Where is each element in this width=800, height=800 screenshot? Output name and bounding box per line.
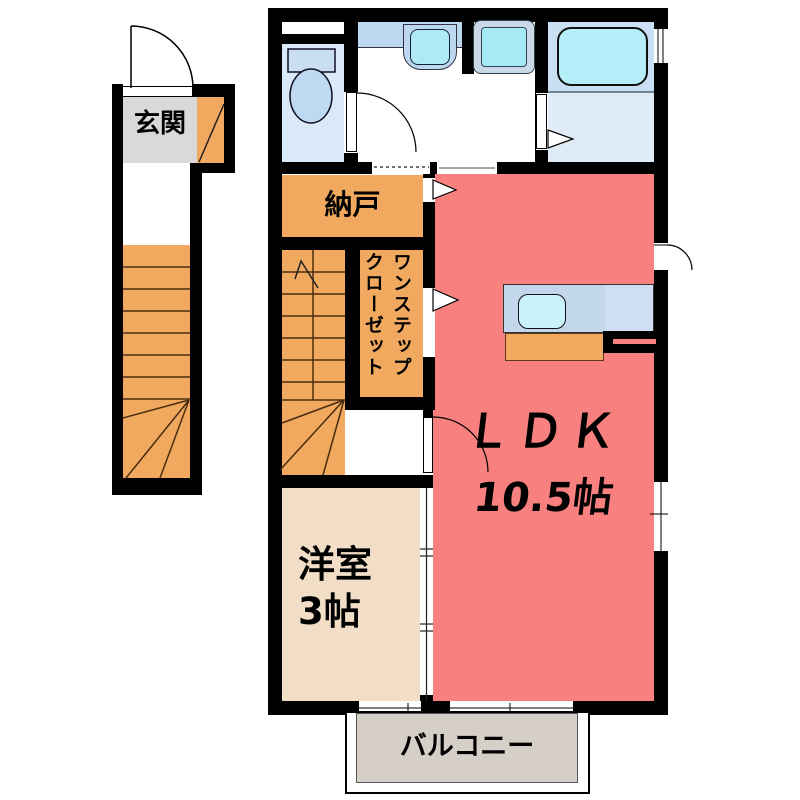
annex-wall-right-shaft [190,163,202,495]
bathroom-lower-floor [548,92,654,162]
wall-stairs-closet [345,250,360,397]
annex-wall-left [112,84,123,495]
kitchen-cabinet [505,333,604,361]
entrance-door-threshold [123,86,192,97]
washroom-sliding-door-right [437,161,497,174]
kitchen-counter-right [605,285,653,332]
western-room-label: 洋室 [298,545,418,586]
storage-label: 納戸 [282,190,423,221]
ldk-side-window [654,480,668,553]
exterior-stairs-floor [123,245,190,478]
interior-stairs-floor [282,250,345,475]
wall-western-top [268,475,433,488]
bath-window [654,27,668,65]
storage-door-gap [423,178,435,202]
closet-label-right-column: ワンステップ [390,252,411,402]
closet-door-gap [423,288,435,357]
toilet-niche [282,22,344,34]
ldk-side-door-gap [654,243,668,270]
wall-landing-stub [423,410,433,417]
entrance-step [197,97,224,163]
washroom-sliding-door-left [372,161,430,174]
toilet-room-floor [282,44,344,162]
bathtub [557,27,648,86]
annex-wall-bottom [112,478,202,495]
wall-left [268,8,282,715]
western-room-area-label: 3帖 [298,592,418,633]
wall-storage-bottom [282,237,435,250]
entrance-door-arc [131,26,193,88]
ldk-label: ＬＤＫ [430,406,657,457]
floor-plan: 玄関 納戸 ワンステップ クローゼット ＬＤＫ 10.5帖 洋室 3帖 バルコニ… [0,0,800,800]
bath-door-leaf [536,94,547,149]
closet-label-left-column: クローゼット [362,252,383,402]
ldk-area-label: 10.5帖 [430,476,656,520]
balcony-label: バルコニー [356,732,578,762]
side-door-arc [667,245,692,270]
washbasin [410,29,450,65]
kitchen-sink [518,294,566,329]
washing-machine-drum [481,27,527,67]
wall-right [654,8,668,715]
toilet-door-leaf [346,92,357,152]
entrance-label: 玄関 [123,110,197,139]
annex-wall-right-upper [224,84,235,173]
kitchen-hatch-line [613,339,656,344]
wall-toilet-niche [282,34,344,44]
